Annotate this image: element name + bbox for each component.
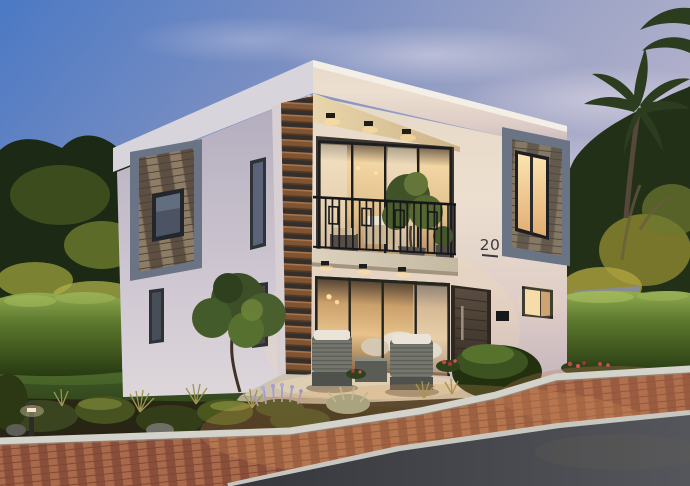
dark-window [253,162,263,247]
shrub-highlight [462,344,514,364]
chair-base [312,372,352,386]
hedge-highlight [55,292,115,304]
wood-slat-screen [281,96,313,378]
potted-tree-foliage [404,172,428,196]
bollard-glow [20,405,44,417]
hedge-right [558,291,690,375]
render-canvas: 20 [0,0,690,486]
balcony-railing [313,196,456,255]
dark-window [152,292,161,341]
tree-foliage [192,298,232,338]
rock [6,424,26,436]
tree-foliage-highlight [241,299,263,321]
cloud [130,16,370,64]
tree-foliage [213,273,243,303]
door-handle [461,306,464,340]
outdoor-chair [312,336,352,372]
coffee-table-top [355,358,387,361]
hedge-highlight [566,291,634,303]
window-halo [516,284,560,320]
outdoor-chair [390,340,433,377]
tree-foliage-highlight [10,165,110,225]
chair-cushion [392,334,431,344]
hedge-left [0,292,122,376]
hedge-highlight [636,291,688,301]
shrub-highlight [78,398,122,410]
villa-dusk-render: 20 [0,0,690,486]
window-mullion [530,157,533,234]
hedge-highlight [4,295,56,307]
house-number-text: 20 [480,236,501,254]
ground-window-right [516,284,560,320]
chair-cushion [314,330,350,340]
stone-accent-right [502,127,570,266]
intercom-panel [496,311,509,321]
hedge-body [558,291,690,375]
stone-accent-left [130,139,202,281]
